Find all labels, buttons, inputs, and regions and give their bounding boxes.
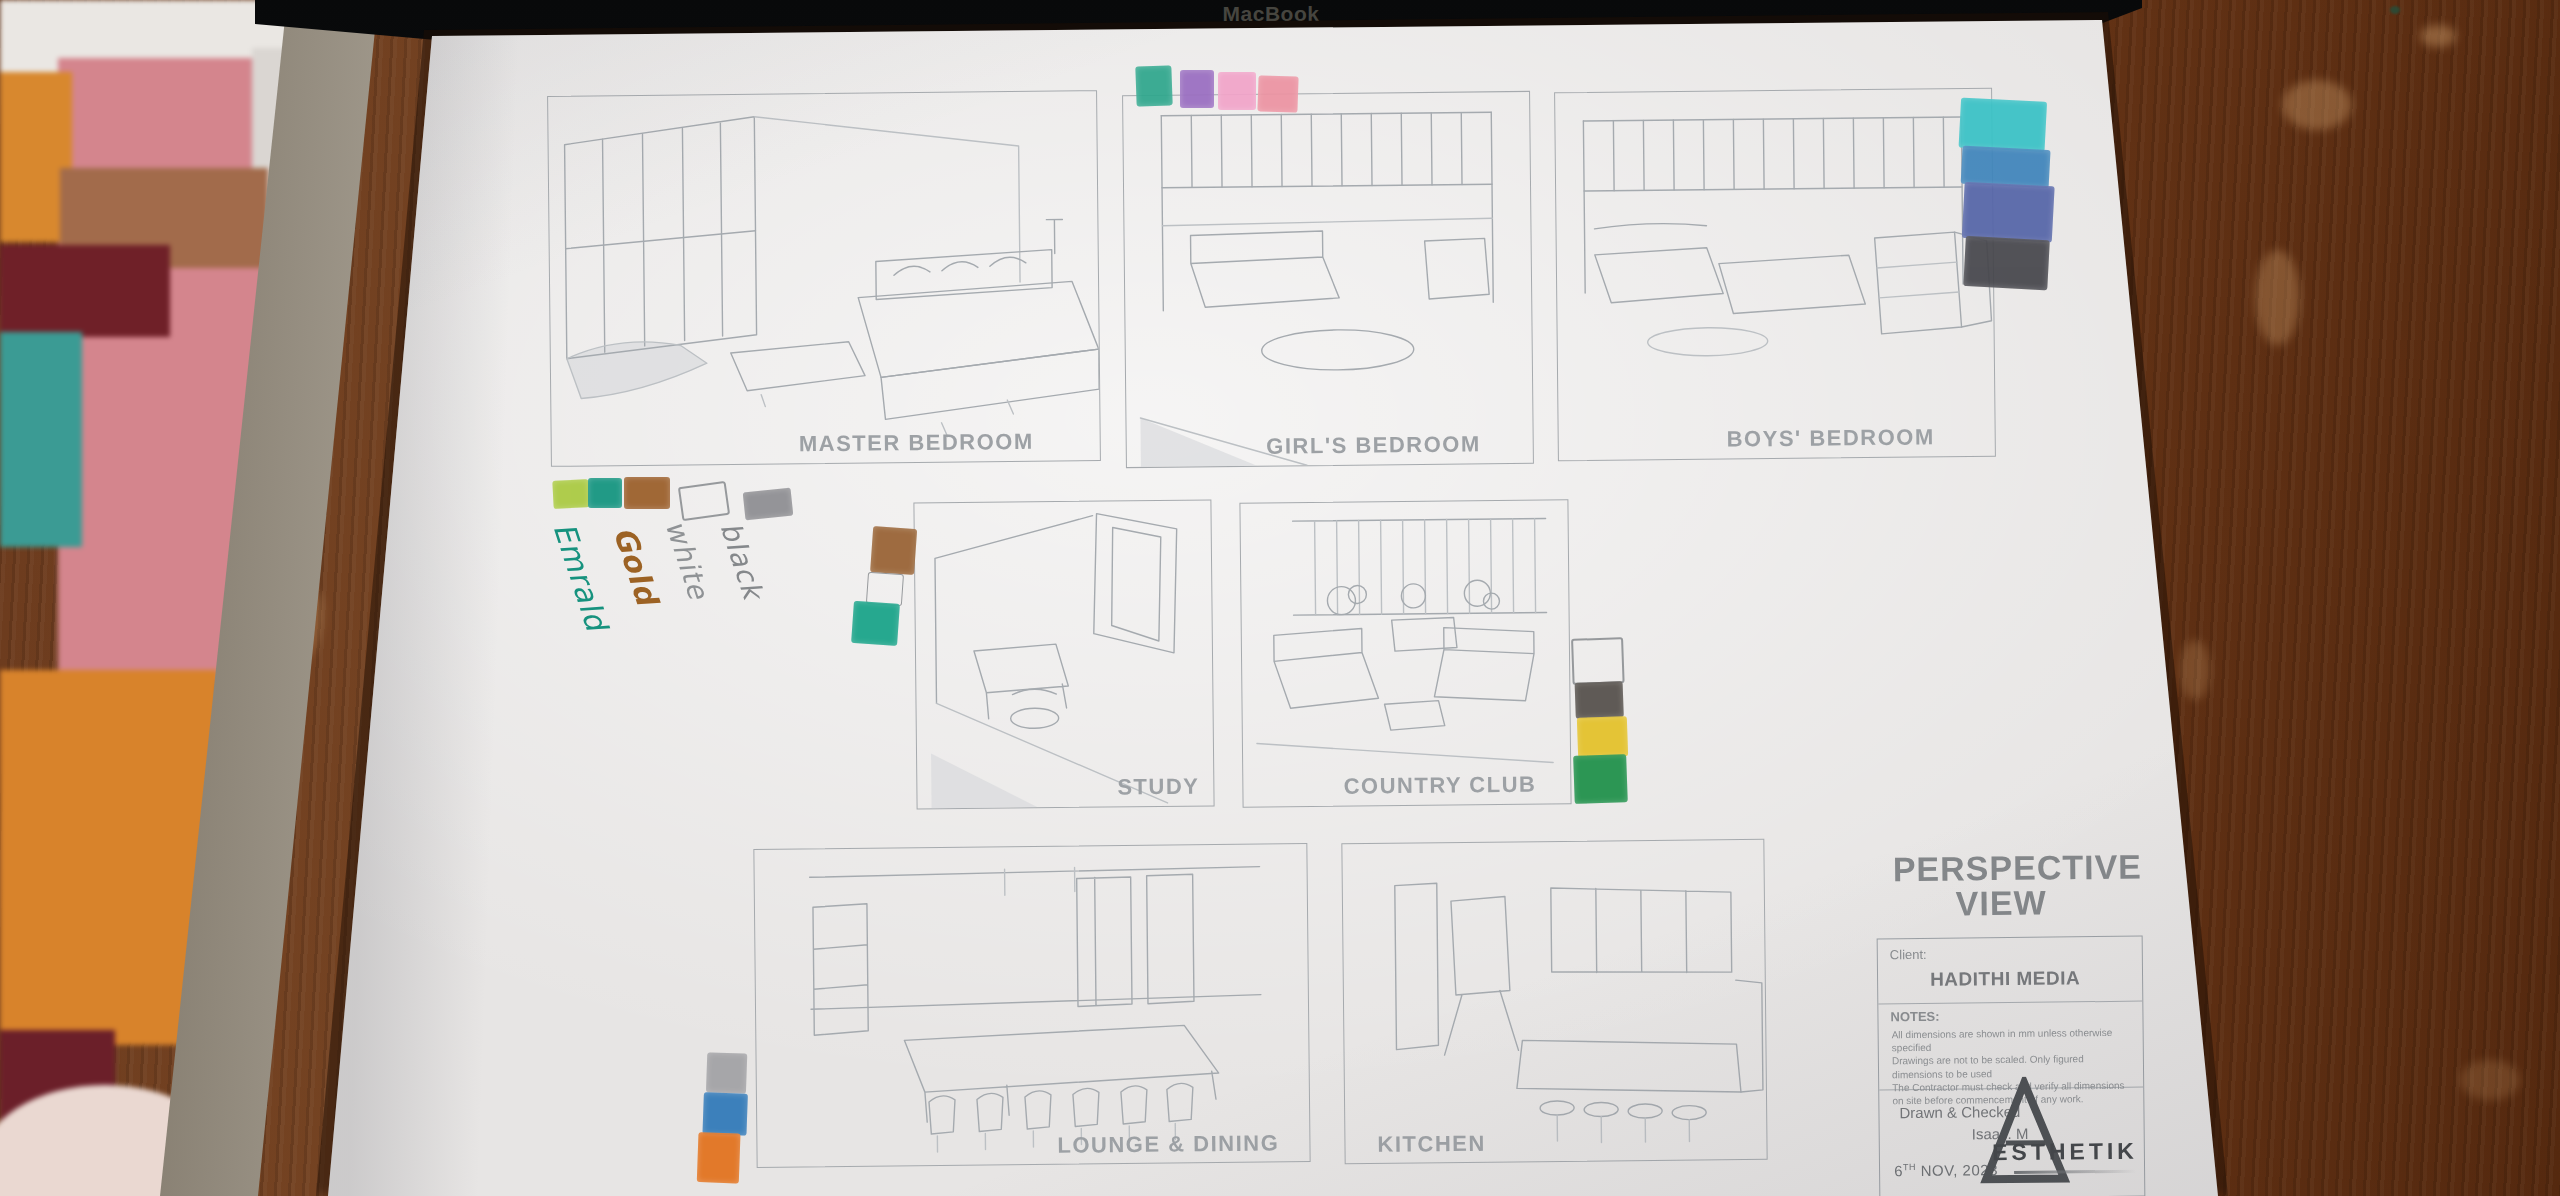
white-swatch xyxy=(1571,637,1625,685)
blue-swatch xyxy=(702,1092,747,1136)
bottom-left-swatch-column xyxy=(695,1052,758,1186)
notes-box: NOTES: All dimensions are shown in mm un… xyxy=(1878,1002,2143,1091)
salmon-swatch xyxy=(1257,75,1298,112)
boys-bedroom-sketch xyxy=(1555,89,1995,461)
title-block: Client: HADITHI MEDIA NOTES: All dimensi… xyxy=(1877,936,2146,1196)
wood-scuff xyxy=(2460,1060,2520,1100)
room-label: GIRL'S BEDROOM xyxy=(1266,431,1481,459)
client-label: Client: xyxy=(1890,947,1927,962)
teal-swatch xyxy=(851,601,900,646)
pink-swatch xyxy=(1218,72,1256,110)
legend-word-gold: Gold xyxy=(607,522,665,610)
note-line: The Contractor must check and verify all… xyxy=(1892,1078,2137,1107)
green-mark xyxy=(2390,6,2400,14)
study-swatch-column xyxy=(851,525,919,651)
gray-swatch xyxy=(706,1052,747,1093)
sheet-title: PERSPECTIVE VIEW xyxy=(1893,850,2110,922)
yellow-swatch xyxy=(1577,716,1628,758)
legend-word-white: white xyxy=(659,516,716,604)
room-label: KITCHEN xyxy=(1377,1131,1486,1158)
brown-swatch xyxy=(870,526,917,575)
master-bedroom-sketch xyxy=(548,91,1100,466)
panel-study: STUDY xyxy=(913,499,1214,809)
room-label: BOYS' BEDROOM xyxy=(1726,424,1934,452)
note-line: Drawings are not to be scaled. Only figu… xyxy=(1892,1052,2137,1081)
client-name: HADITHI MEDIA xyxy=(1930,967,2080,991)
drawn-by-name: Isaac. M xyxy=(1972,1125,2029,1143)
panel-boys-bedroom: BOYS' BEDROOM xyxy=(1554,88,1996,462)
photo-scene: MacBook MAS xyxy=(0,0,2560,1196)
legend-word-black: black xyxy=(714,518,770,604)
brown-swatch xyxy=(624,477,670,509)
green-swatch xyxy=(1573,754,1628,804)
country-club-sketch xyxy=(1240,500,1570,806)
lounge-dining-sketch xyxy=(754,844,1309,1167)
wood-scuff xyxy=(2255,250,2300,345)
teal-swatch xyxy=(1135,65,1172,106)
rug-patch-maroon xyxy=(0,245,170,337)
signature-box: Drawn & Checked Isaac. M 6TH NOV, 2023 E… xyxy=(1879,1088,2144,1196)
logo-triangle-icon xyxy=(1969,1076,2080,1187)
teal-swatch xyxy=(588,478,622,508)
notes-text: All dimensions are shown in mm unless ot… xyxy=(1892,1026,2138,1108)
wood-scuff xyxy=(2420,25,2456,47)
panel-girls-bedroom: GIRL'S BEDROOM xyxy=(1122,91,1534,468)
white-swatch xyxy=(678,481,730,521)
room-label: STUDY xyxy=(1117,774,1199,801)
date-rest: NOV, 2023 xyxy=(1916,1161,1998,1179)
room-label: LOUNGE & DINING xyxy=(1057,1130,1279,1158)
country-club-swatch-column xyxy=(1565,637,1635,809)
dark-gray-swatch xyxy=(1963,236,2050,290)
drawn-checked-label: Drawn & Checked xyxy=(1899,1103,2020,1121)
esthetik-logo: ESTHETIK xyxy=(1969,1076,2138,1194)
purple-swatch xyxy=(1180,70,1214,108)
notes-label: NOTES: xyxy=(1890,1009,1939,1025)
wood-scuff xyxy=(2282,80,2352,130)
gray-swatch xyxy=(743,488,794,521)
right-swatch-column xyxy=(1951,98,2061,298)
legend-word-emerald: Emrald xyxy=(547,518,615,636)
panel-lounge-dining: LOUNGE & DINING xyxy=(753,843,1310,1168)
panel-master-bedroom: MASTER BEDROOM xyxy=(547,90,1101,467)
indigo-swatch xyxy=(1962,182,2055,243)
logo-swoosh xyxy=(2014,1170,2136,1174)
note-line: All dimensions are shown in mm unless ot… xyxy=(1892,1026,2137,1055)
room-label: MASTER BEDROOM xyxy=(799,429,1034,457)
client-box: Client: HADITHI MEDIA xyxy=(1878,937,2143,1005)
panel-kitchen: KITCHEN xyxy=(1341,839,1767,1164)
black-swatch xyxy=(1575,681,1624,719)
rug-patch-teal xyxy=(0,332,82,547)
blue-swatch xyxy=(1961,146,2051,189)
study-sketch xyxy=(914,500,1213,808)
wood-scuff xyxy=(2180,640,2210,700)
lime-swatch xyxy=(552,479,589,509)
turquoise-swatch xyxy=(1959,98,2047,152)
panel-country-club: COUNTRY CLUB xyxy=(1239,499,1571,807)
orange-swatch xyxy=(697,1132,741,1183)
room-label: COUNTRY CLUB xyxy=(1343,772,1536,800)
girls-bedroom-sketch xyxy=(1123,92,1533,467)
white-swatch xyxy=(866,572,904,606)
date-day: 6 xyxy=(1894,1162,1903,1179)
sheet-date: 6TH NOV, 2023 xyxy=(1894,1161,1998,1179)
kitchen-sketch xyxy=(1342,840,1766,1163)
logo-text: ESTHETIK xyxy=(1992,1138,2138,1167)
date-suffix: TH xyxy=(1903,1162,1916,1172)
